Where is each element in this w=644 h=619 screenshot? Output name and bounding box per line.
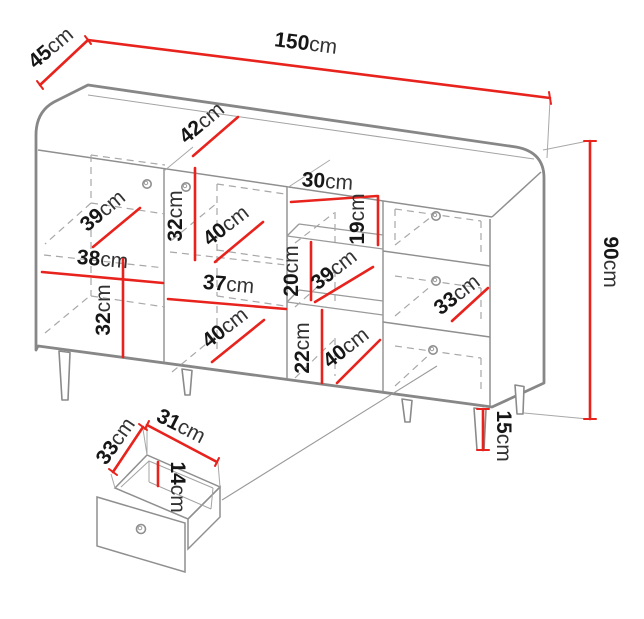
extension-line bbox=[111, 474, 115, 488]
extension-line bbox=[143, 429, 147, 455]
dim-label-leg-height: 15cm bbox=[492, 410, 515, 461]
extension-line bbox=[218, 463, 220, 487]
drawer-detail-side bbox=[188, 487, 220, 549]
dim-label-left-lower-height: 32cm bbox=[92, 284, 115, 335]
cabinet-back-leg bbox=[515, 385, 524, 414]
cabinet-leg bbox=[182, 369, 192, 395]
dim-tick bbox=[549, 92, 551, 104]
cabinet-leg bbox=[402, 399, 412, 422]
dim-label-shelves-width: 30cm bbox=[301, 168, 354, 195]
dim-label-middle-inner-width: 37cm bbox=[202, 271, 255, 298]
drawer-detail-inner-wall bbox=[211, 488, 213, 509]
furniture-dimension-diagram: 45cm 150cm 90cm 15cm 42cm 39cm 38cm 32cm… bbox=[0, 0, 644, 619]
dim-label-shelves-middle-height: 20cm bbox=[280, 245, 303, 296]
dim-label-overall-width: 150cm bbox=[273, 28, 338, 59]
dim-label-middle-upper-height: 32cm bbox=[164, 190, 187, 241]
dim-label-overall-depth: 45cm bbox=[24, 23, 78, 74]
dim-label-overall-height: 90cm bbox=[599, 236, 622, 287]
dim-label-shelves-bottom-height: 22cm bbox=[291, 322, 314, 373]
drawer-detail-inset bbox=[97, 366, 437, 572]
dim-label-left-inner-width: 38cm bbox=[76, 246, 129, 273]
extension-line bbox=[524, 413, 588, 419]
dim-label-shelves-top-height: 19cm bbox=[346, 193, 369, 244]
sideboard-technical-drawing: 45cm 150cm 90cm 15cm 42cm 39cm 38cm 32cm… bbox=[0, 0, 644, 619]
dim-label-detail-inner-height: 14cm bbox=[166, 461, 189, 512]
cabinet-leg bbox=[59, 351, 70, 400]
extension-line bbox=[543, 141, 588, 150]
